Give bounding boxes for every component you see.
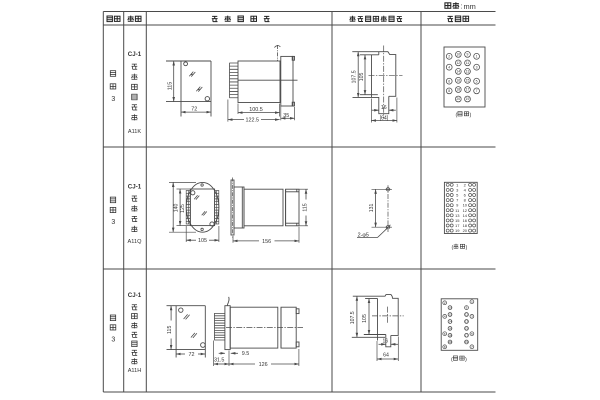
svg-text:7: 7 (476, 89, 478, 93)
svg-text:64: 64 (383, 352, 389, 358)
svg-text:): ) (466, 245, 468, 251)
svg-text:12: 12 (456, 61, 460, 65)
svg-text:4: 4 (448, 65, 450, 69)
svg-text:19: 19 (465, 340, 469, 344)
svg-text:3: 3 (111, 336, 115, 343)
svg-text:16: 16 (381, 105, 387, 111)
svg-text:107.5: 107.5 (351, 70, 357, 83)
svg-text:13: 13 (465, 320, 469, 324)
svg-text:2-φ5: 2-φ5 (358, 232, 369, 238)
svg-text:3: 3 (111, 219, 115, 226)
svg-text:72: 72 (189, 352, 195, 358)
svg-text:14: 14 (448, 320, 452, 324)
svg-text:14: 14 (456, 70, 460, 74)
svg-text:31.5: 31.5 (214, 358, 225, 364)
svg-text:mm: mm (464, 2, 476, 11)
svg-text::: : (461, 4, 463, 11)
svg-text:11: 11 (466, 61, 470, 65)
svg-text:1: 1 (476, 55, 478, 59)
svg-text:16: 16 (383, 339, 389, 345)
svg-text:A11Q: A11Q (128, 239, 143, 245)
svg-text:(: ( (456, 113, 458, 119)
svg-text:122.5: 122.5 (246, 118, 260, 124)
svg-text:105: 105 (198, 238, 207, 244)
svg-text:105: 105 (362, 314, 368, 323)
svg-text:CJ-1: CJ-1 (128, 184, 142, 191)
svg-text:17: 17 (465, 333, 469, 337)
svg-text:19: 19 (466, 97, 470, 101)
svg-text:20: 20 (448, 340, 452, 344)
svg-text:A11H: A11H (128, 368, 142, 374)
svg-text:[64]: [64] (380, 115, 389, 121)
svg-text:35: 35 (283, 113, 289, 119)
svg-text:131: 131 (369, 203, 375, 212)
svg-text:8: 8 (448, 89, 450, 93)
svg-text:9: 9 (467, 53, 469, 57)
svg-text:18: 18 (448, 333, 452, 337)
svg-text:A11K: A11K (128, 129, 142, 135)
svg-text:16: 16 (448, 327, 452, 331)
svg-text:12: 12 (448, 313, 452, 317)
svg-text:105: 105 (359, 72, 365, 81)
svg-text:20: 20 (456, 97, 460, 101)
svg-text:2: 2 (448, 55, 450, 59)
svg-text:CJ-1: CJ-1 (128, 51, 142, 58)
svg-text:20: 20 (463, 228, 468, 233)
svg-text:(: ( (452, 245, 454, 251)
svg-text:11: 11 (465, 313, 468, 317)
svg-text:100.5: 100.5 (249, 107, 263, 113)
svg-text:115: 115 (302, 203, 308, 211)
svg-text:18: 18 (456, 88, 460, 92)
svg-text:17: 17 (466, 88, 470, 92)
svg-text:16: 16 (456, 79, 460, 83)
svg-text:115: 115 (168, 82, 174, 91)
svg-text:19: 19 (455, 228, 460, 233)
svg-text:5: 5 (476, 79, 478, 83)
svg-text:3: 3 (111, 96, 115, 103)
svg-text:115: 115 (167, 326, 173, 334)
svg-text:(: ( (451, 357, 453, 363)
svg-text:6: 6 (448, 79, 450, 83)
svg-text:15: 15 (465, 327, 469, 331)
svg-text:10: 10 (456, 53, 460, 57)
svg-text:3: 3 (476, 65, 478, 69)
svg-text:): ) (465, 357, 467, 363)
svg-text:72: 72 (191, 107, 197, 113)
svg-text:CJ-1: CJ-1 (128, 292, 142, 299)
svg-text:107.5: 107.5 (350, 311, 356, 324)
svg-text:13: 13 (466, 70, 470, 74)
svg-text:): ) (470, 113, 472, 119)
svg-text:156: 156 (262, 239, 271, 245)
svg-text:10: 10 (448, 306, 452, 310)
svg-text:125: 125 (180, 204, 186, 213)
svg-text:140: 140 (174, 203, 180, 212)
svg-text:9.5: 9.5 (242, 351, 250, 357)
svg-text:126: 126 (259, 362, 268, 368)
svg-text:15: 15 (466, 79, 470, 83)
